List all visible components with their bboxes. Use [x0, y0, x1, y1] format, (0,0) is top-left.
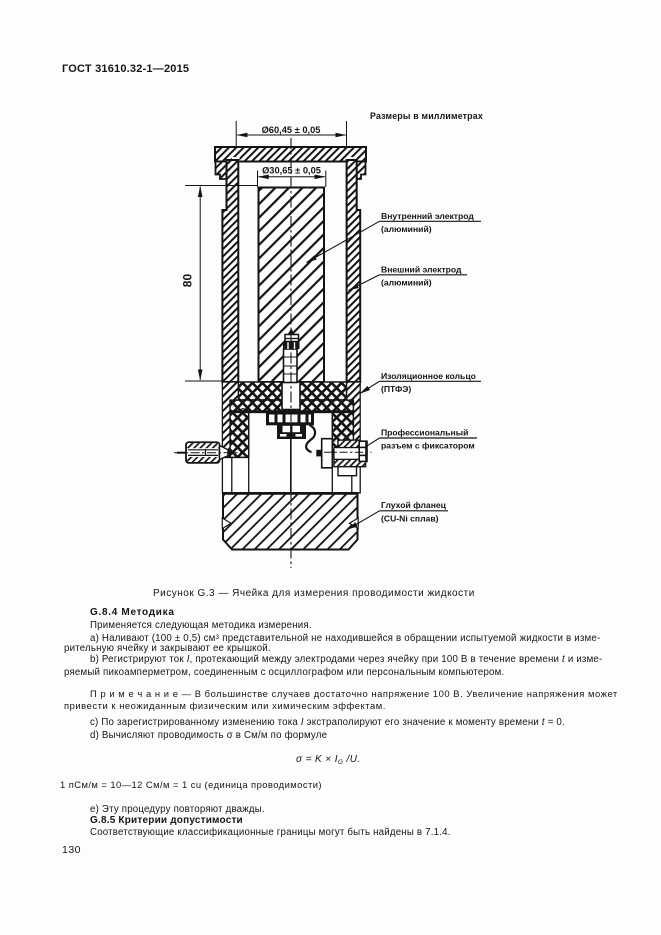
svg-text:Ø60,45 ± 0,05: Ø60,45 ± 0,05 — [262, 125, 321, 135]
svg-text:Внешний электрод: Внешний электрод — [381, 265, 462, 275]
svg-text:(алюминий): (алюминий) — [381, 224, 432, 234]
svg-text:Глухой фланец: Глухой фланец — [381, 500, 447, 510]
svg-text:(CU-Ni сплав): (CU-Ni сплав) — [381, 514, 439, 524]
svg-text:Профессиональный: Профессиональный — [381, 428, 468, 438]
svg-text:80: 80 — [181, 274, 195, 288]
svg-text:разъем с фиксатором: разъем с фиксатором — [381, 441, 475, 451]
svg-text:Ø30,65 ± 0,05: Ø30,65 ± 0,05 — [262, 166, 321, 176]
svg-text:Внутренний электрод: Внутренний электрод — [381, 211, 474, 221]
svg-text:(алюминий): (алюминий) — [381, 278, 432, 288]
svg-text:(ПТФЭ): (ПТФЭ) — [381, 384, 411, 394]
svg-text:Изоляционное кольцо: Изоляционное кольцо — [381, 371, 476, 381]
